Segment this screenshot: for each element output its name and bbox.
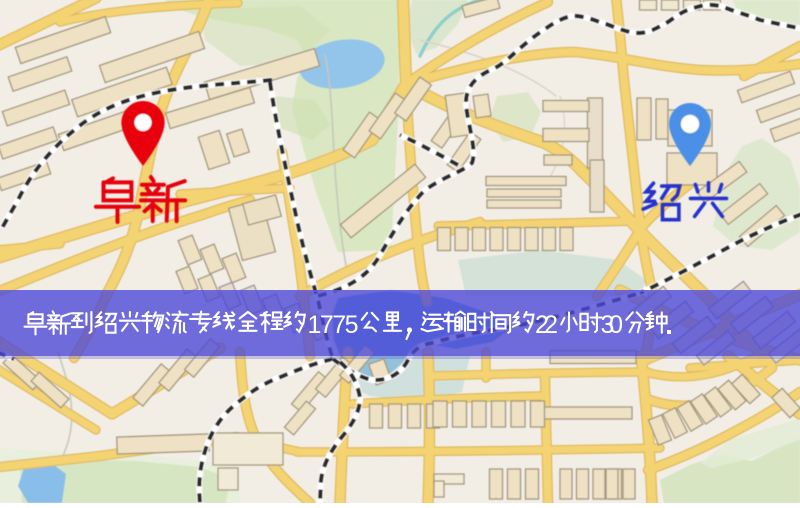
svg-text:22: 22 xyxy=(535,311,558,339)
svg-text:30: 30 xyxy=(601,311,624,339)
svg-text:1775: 1775 xyxy=(308,311,359,339)
